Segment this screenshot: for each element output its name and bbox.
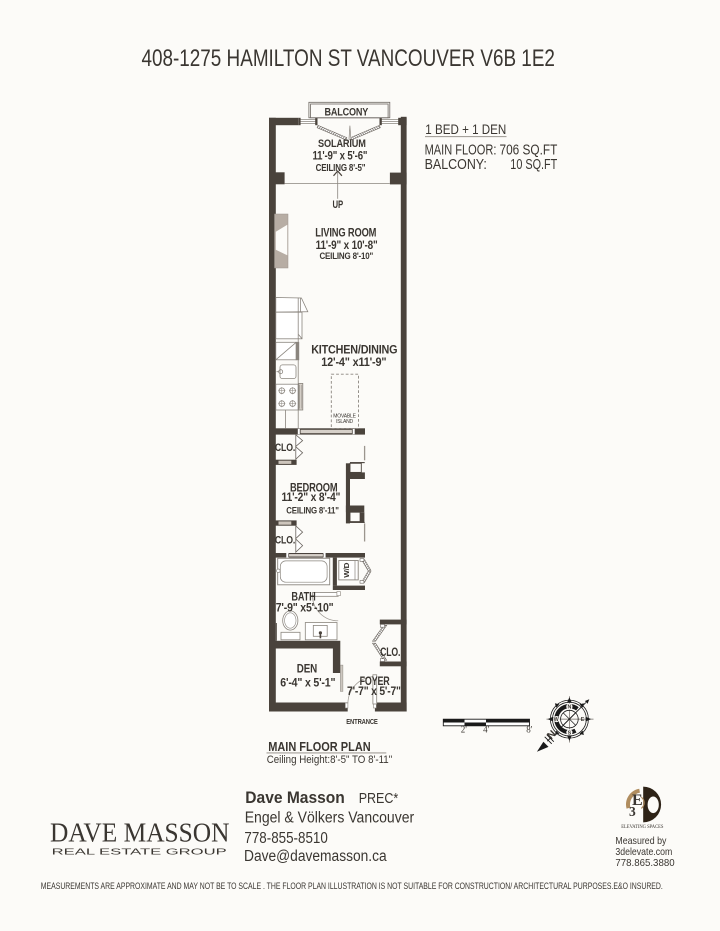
svg-text:BALCONY: BALCONY (324, 107, 368, 119)
svg-text:ELEVATING SPACES: ELEVATING SPACES (621, 825, 664, 830)
svg-text:CEILING 8'-11": CEILING 8'-11" (286, 506, 339, 516)
svg-text:ENTRANCE: ENTRANCE (346, 717, 378, 726)
svg-text:UP: UP (333, 199, 344, 211)
svg-text:8': 8' (526, 724, 533, 734)
svg-text:N: N (567, 705, 571, 711)
svg-text:4': 4' (483, 724, 490, 734)
svg-text:BALCONY:: BALCONY: (425, 157, 487, 173)
svg-text:MEASUREMENTS ARE APPROXIMATE: MEASUREMENTS ARE APPROXIMATE AND MAY NOT… (41, 881, 663, 891)
svg-text:Dave@davemasson.ca: Dave@davemasson.ca (244, 848, 387, 865)
svg-text:DEN: DEN (297, 663, 317, 675)
svg-text:E: E (581, 717, 585, 723)
svg-text:S: S (568, 731, 572, 737)
svg-text:Ceiling Height:8'-5" TO 8'-11": Ceiling Height:8'-5" TO 8'-11" (267, 754, 393, 766)
svg-text:6'-4" x 5'-1": 6'-4" x 5'-1" (280, 675, 335, 689)
svg-text:7'-7" x 5'-7": 7'-7" x 5'-7" (347, 684, 401, 698)
svg-text:Dave Masson: Dave Masson (245, 789, 344, 807)
svg-text:ISLAND: ISLAND (336, 419, 353, 425)
svg-text:MAIN FLOOR PLAN: MAIN FLOOR PLAN (268, 740, 371, 754)
svg-text:W/D: W/D (342, 562, 351, 578)
svg-text:3: 3 (629, 804, 636, 819)
svg-text:CLO.: CLO. (275, 535, 295, 547)
svg-text:2': 2' (461, 724, 468, 734)
svg-text:778-855-8510: 778-855-8510 (244, 830, 328, 847)
svg-text:7'-9" x5'-10": 7'-9" x5'-10" (276, 601, 334, 615)
svg-text:Engel & Völkers Vancouver: Engel & Völkers Vancouver (245, 809, 415, 826)
svg-text:PREC*: PREC* (359, 791, 399, 807)
svg-text:10 SQ.FT: 10 SQ.FT (510, 157, 557, 173)
svg-text:CEILING 8'-5": CEILING 8'-5" (316, 163, 366, 174)
svg-text:11'-2" x 8'-4": 11'-2" x 8'-4" (282, 490, 341, 504)
svg-text:1 BED + 1 DEN: 1 BED + 1 DEN (425, 121, 506, 137)
svg-text:DAVE MASSON: DAVE MASSON (50, 817, 230, 848)
svg-text:CLO.: CLO. (380, 647, 400, 659)
svg-text:CLO.: CLO. (275, 442, 295, 454)
svg-text:REAL ESTATE GROUP: REAL ESTATE GROUP (52, 848, 228, 857)
svg-text:408-1275 HAMILTON ST VANCOUVER: 408-1275 HAMILTON ST VANCOUVER V6B 1E2 (141, 45, 555, 72)
svg-text:778.865.3880: 778.865.3880 (615, 857, 674, 869)
svg-text:11'-9" x 5'-6": 11'-9" x 5'-6" (313, 148, 368, 162)
svg-text:12'-4" x11'-9": 12'-4" x11'-9" (321, 355, 386, 369)
svg-text:CEILING 8'-10": CEILING 8'-10" (319, 251, 373, 261)
